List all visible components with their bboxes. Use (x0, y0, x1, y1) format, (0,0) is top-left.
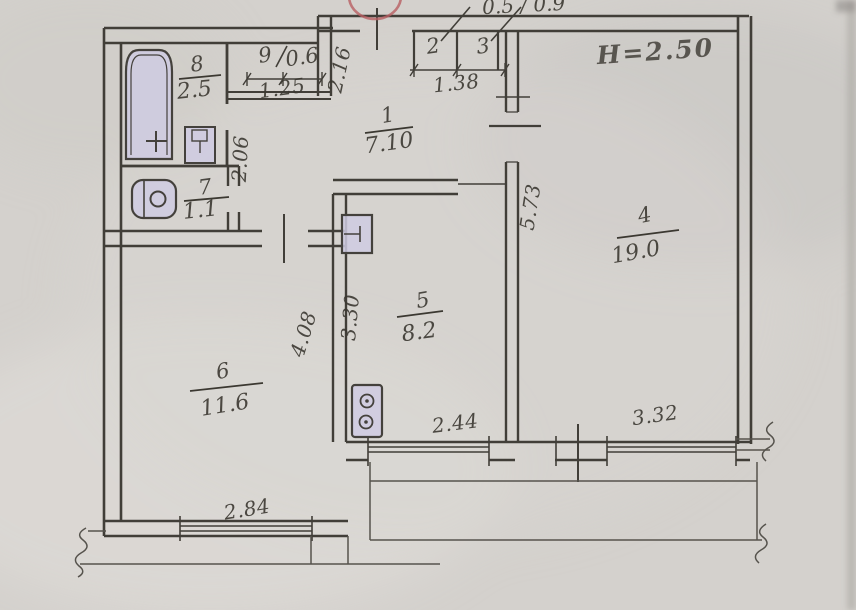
room-area: 2.5 (175, 76, 213, 105)
room-area: 1.1 (182, 196, 219, 225)
dim-bath-block: 2.06 (227, 135, 253, 184)
bathtub-icon (126, 50, 172, 159)
dim-kitchen-depth: 3.30 (336, 293, 364, 341)
toilet-icon (132, 180, 176, 218)
kitchen-sink-icon (342, 215, 372, 253)
room-area: 8.2 (400, 318, 438, 348)
room-area: 0.6 (284, 43, 320, 71)
dim-closets-width: 1.38 (432, 69, 481, 98)
floor-plan-photo: 1 7.10 4 19.0 5 8.2 6 11.6 7 1.1 8 2.5 (0, 0, 856, 610)
floor-plan-svg: 1 7.10 4 19.0 5 8.2 6 11.6 7 1.1 8 2.5 (0, 0, 856, 610)
room-label-niche: 9 0.6 (257, 42, 321, 71)
sink-icon (185, 127, 215, 163)
stove-icon (352, 385, 382, 437)
